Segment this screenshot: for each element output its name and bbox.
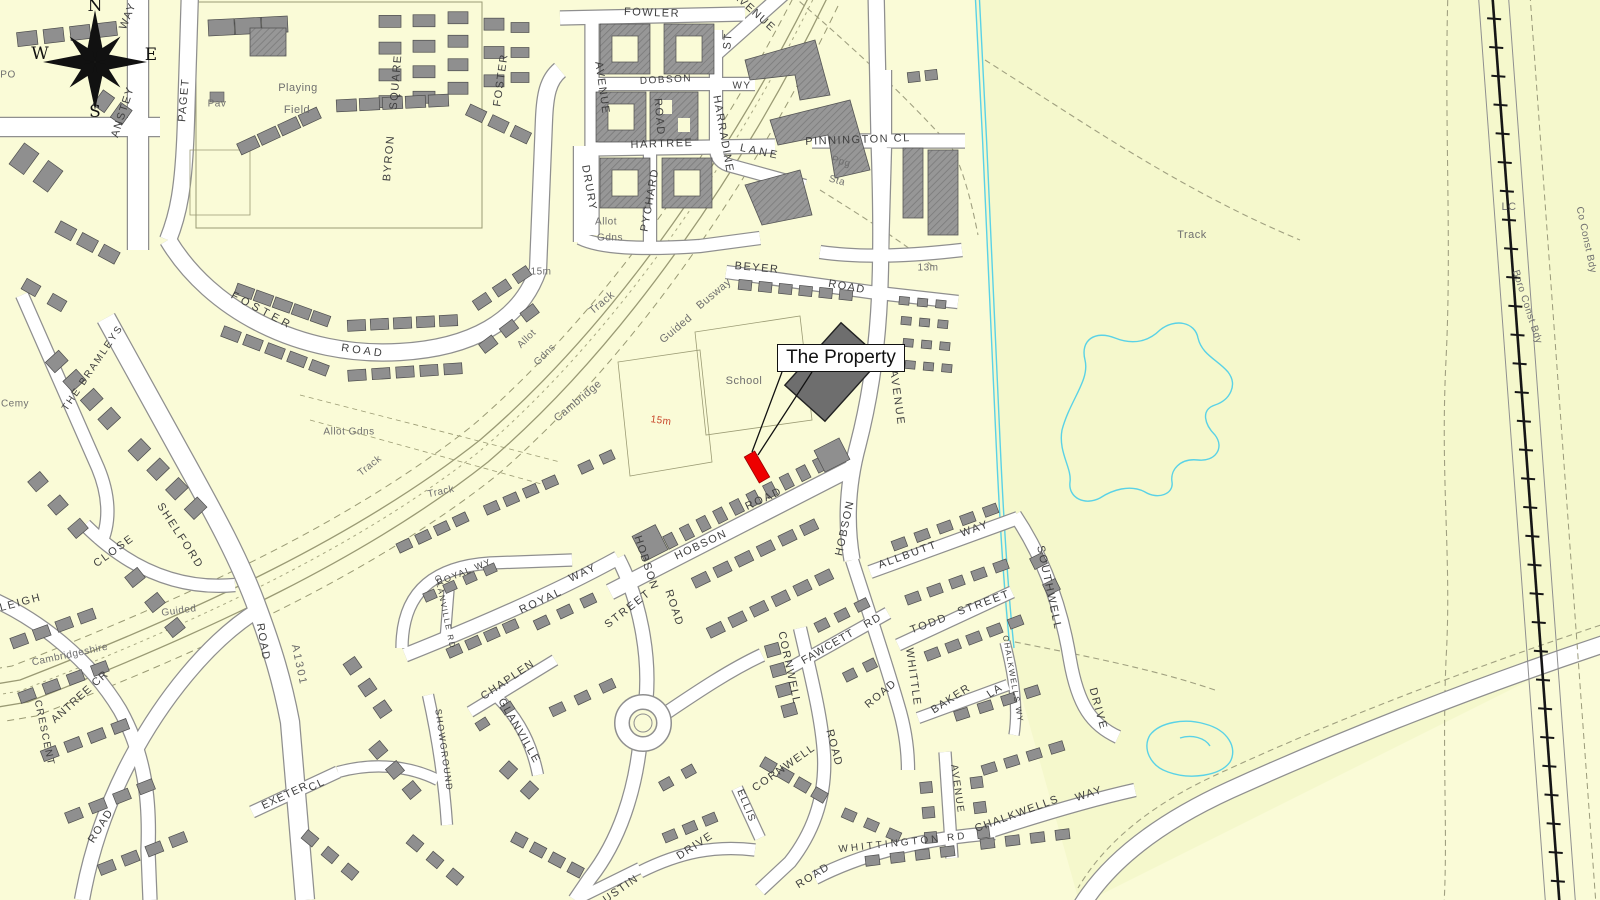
map-canvas[interactable]: POWAYANSTEYPAGETPavPlayingFieldSQUAREBYR… <box>0 0 1600 900</box>
roundabout <box>622 702 664 744</box>
compass-n-label: N <box>88 0 103 16</box>
compass-e-label: E <box>145 45 157 65</box>
map-graphics <box>0 0 1600 900</box>
compass-w-label: W <box>31 44 48 64</box>
compass-s-label: S <box>89 102 101 122</box>
property-callout[interactable]: The Property <box>777 344 905 372</box>
